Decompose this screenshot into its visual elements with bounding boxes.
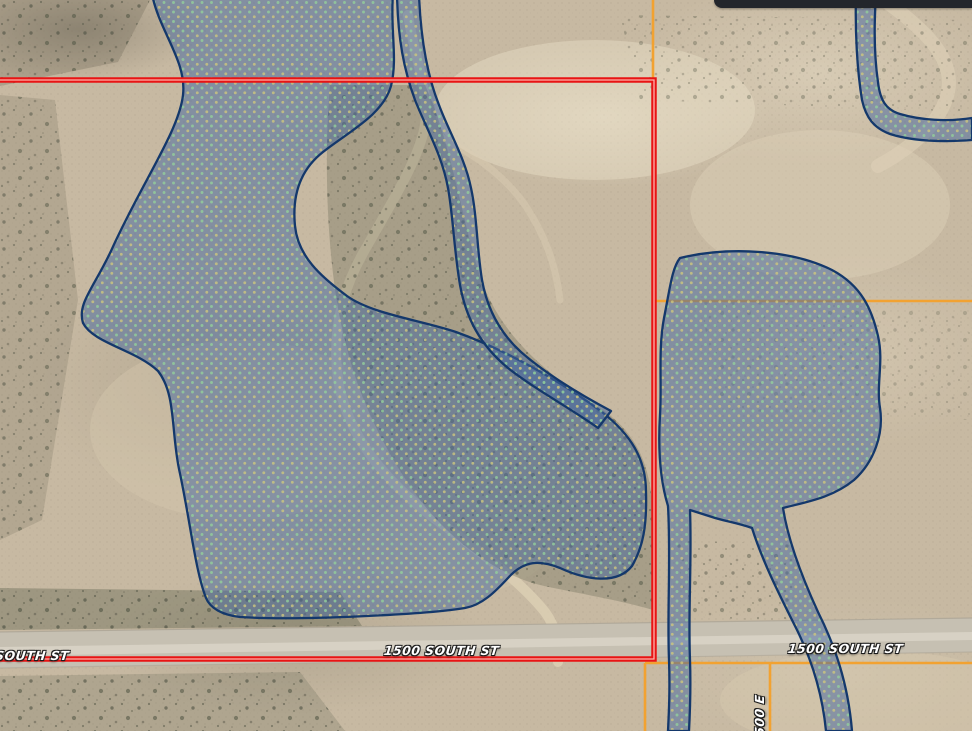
- road-label-4500-e-vertical: 4500 E: [752, 694, 767, 731]
- road-label-1500-south-right: 1500 SOUTH ST: [787, 641, 904, 656]
- road-label-1500-south-left: 1500 SOUTH ST: [0, 648, 70, 663]
- road-label-1500-south-center: 1500 SOUTH ST: [383, 643, 500, 658]
- map-canvas[interactable]: [0, 0, 972, 731]
- dark-toolbar-edge: [714, 0, 972, 8]
- map-viewport[interactable]: 1500 SOUTH ST 1500 SOUTH ST 1500 SOUTH S…: [0, 0, 972, 731]
